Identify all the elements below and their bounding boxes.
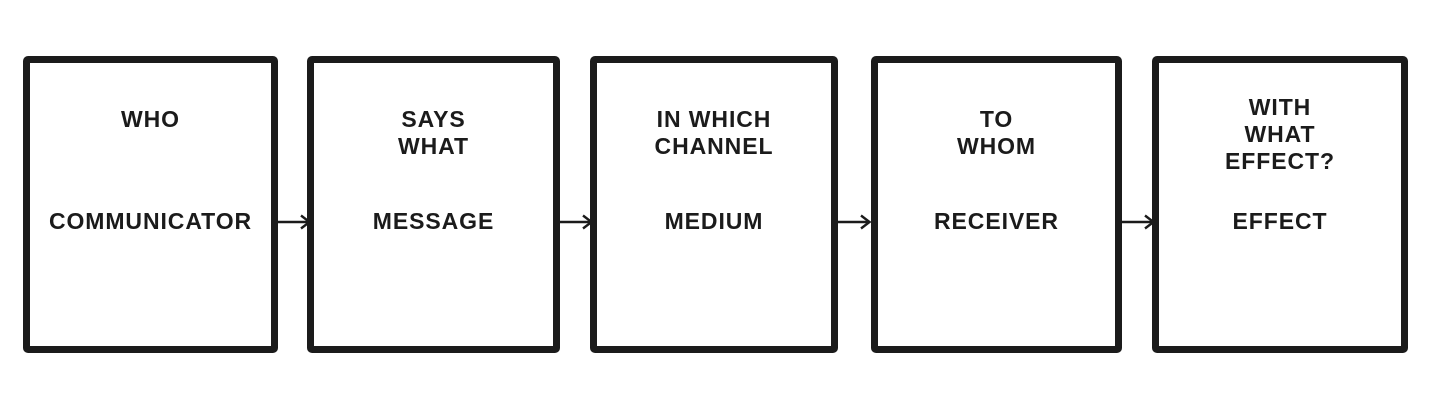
right-arrow-icon — [559, 211, 593, 233]
right-arrow-icon — [1121, 211, 1155, 233]
flow-box-message: SAYS WHAT MESSAGE — [307, 56, 560, 353]
box-question-label: TO WHOM — [878, 106, 1115, 160]
box-element-label: RECEIVER — [878, 208, 1115, 235]
box-question-label: SAYS WHAT — [314, 106, 553, 160]
flow-box-receiver: TO WHOM RECEIVER — [871, 56, 1122, 353]
flow-box-communicator: WHO COMMUNICATOR — [23, 56, 278, 353]
lasswell-model-diagram: WHO COMMUNICATOR SAYS WHAT MESSAGE IN WH… — [0, 0, 1440, 403]
box-element-label: MEDIUM — [597, 208, 831, 235]
right-arrow-icon — [837, 211, 871, 233]
box-element-label: MESSAGE — [314, 208, 553, 235]
flow-box-effect: WITH WHAT EFFECT? EFFECT — [1152, 56, 1408, 353]
flow-box-medium: IN WHICH CHANNEL MEDIUM — [590, 56, 838, 353]
box-question-label: WHO — [30, 106, 271, 133]
box-question-label: IN WHICH CHANNEL — [597, 106, 831, 160]
box-element-label: COMMUNICATOR — [30, 208, 271, 235]
box-element-label: EFFECT — [1159, 208, 1401, 235]
box-question-label: WITH WHAT EFFECT? — [1159, 94, 1401, 175]
right-arrow-icon — [277, 211, 311, 233]
